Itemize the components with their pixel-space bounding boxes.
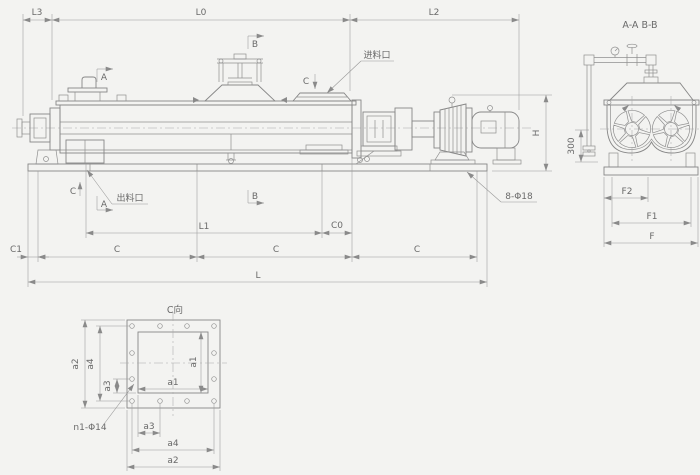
dim-a4h-label: a4: [167, 439, 179, 449]
dim-a3h-label: a3: [143, 422, 154, 432]
marker-a-top-label: A: [101, 73, 108, 83]
dim-a1h-label: a1: [167, 378, 178, 388]
dim-a2h-label: a2: [167, 456, 178, 466]
dim-f-label: F: [649, 232, 654, 242]
dim-c-mid-label: C: [273, 245, 279, 255]
dim-l-label: L: [255, 271, 260, 281]
n1-holes-label: n1-Φ14: [73, 423, 106, 433]
marker-c-top-label: C: [303, 77, 309, 87]
dim-a4v-label: a4: [86, 358, 96, 370]
discharge-outlet-label: 出料口: [116, 192, 143, 204]
section-title: A-A B-B: [622, 20, 657, 31]
paddle-dryer-drawing: L3 L0 L2 H L1: [0, 0, 700, 475]
dim-a3v-label: a3: [103, 380, 113, 391]
dim-c-left-label: C: [114, 245, 120, 255]
dim-f1-label: F1: [647, 212, 658, 222]
dim-c1-label: C1: [10, 245, 22, 255]
dim-l3-label: L3: [32, 8, 43, 18]
dim-c0-label: C0: [331, 221, 343, 231]
base-holes-label: 8-Φ18: [505, 192, 533, 202]
dim-f2-label: F2: [622, 187, 633, 197]
marker-a-bottom-label: A: [101, 200, 108, 210]
dim-h-label: H: [532, 130, 542, 137]
dim-l0-label: L0: [196, 8, 207, 18]
dim-c-right-label: C: [414, 245, 420, 255]
feed-inlet-label: 进料口: [363, 49, 390, 61]
marker-b-top-label: B: [252, 40, 258, 50]
dim-300-label: 300: [567, 137, 577, 154]
dim-a1v-label: a1: [189, 356, 199, 367]
dim-a2v-label: a2: [71, 358, 81, 369]
dim-l2-label: L2: [429, 8, 440, 18]
engineering-drawing-canvas: L3 L0 L2 H L1: [0, 0, 700, 475]
c-view-title: C向: [167, 304, 183, 316]
marker-b-bottom-label: B: [252, 192, 258, 202]
dim-l1-label: L1: [199, 222, 210, 232]
marker-c-bottom-label: C: [70, 187, 76, 197]
